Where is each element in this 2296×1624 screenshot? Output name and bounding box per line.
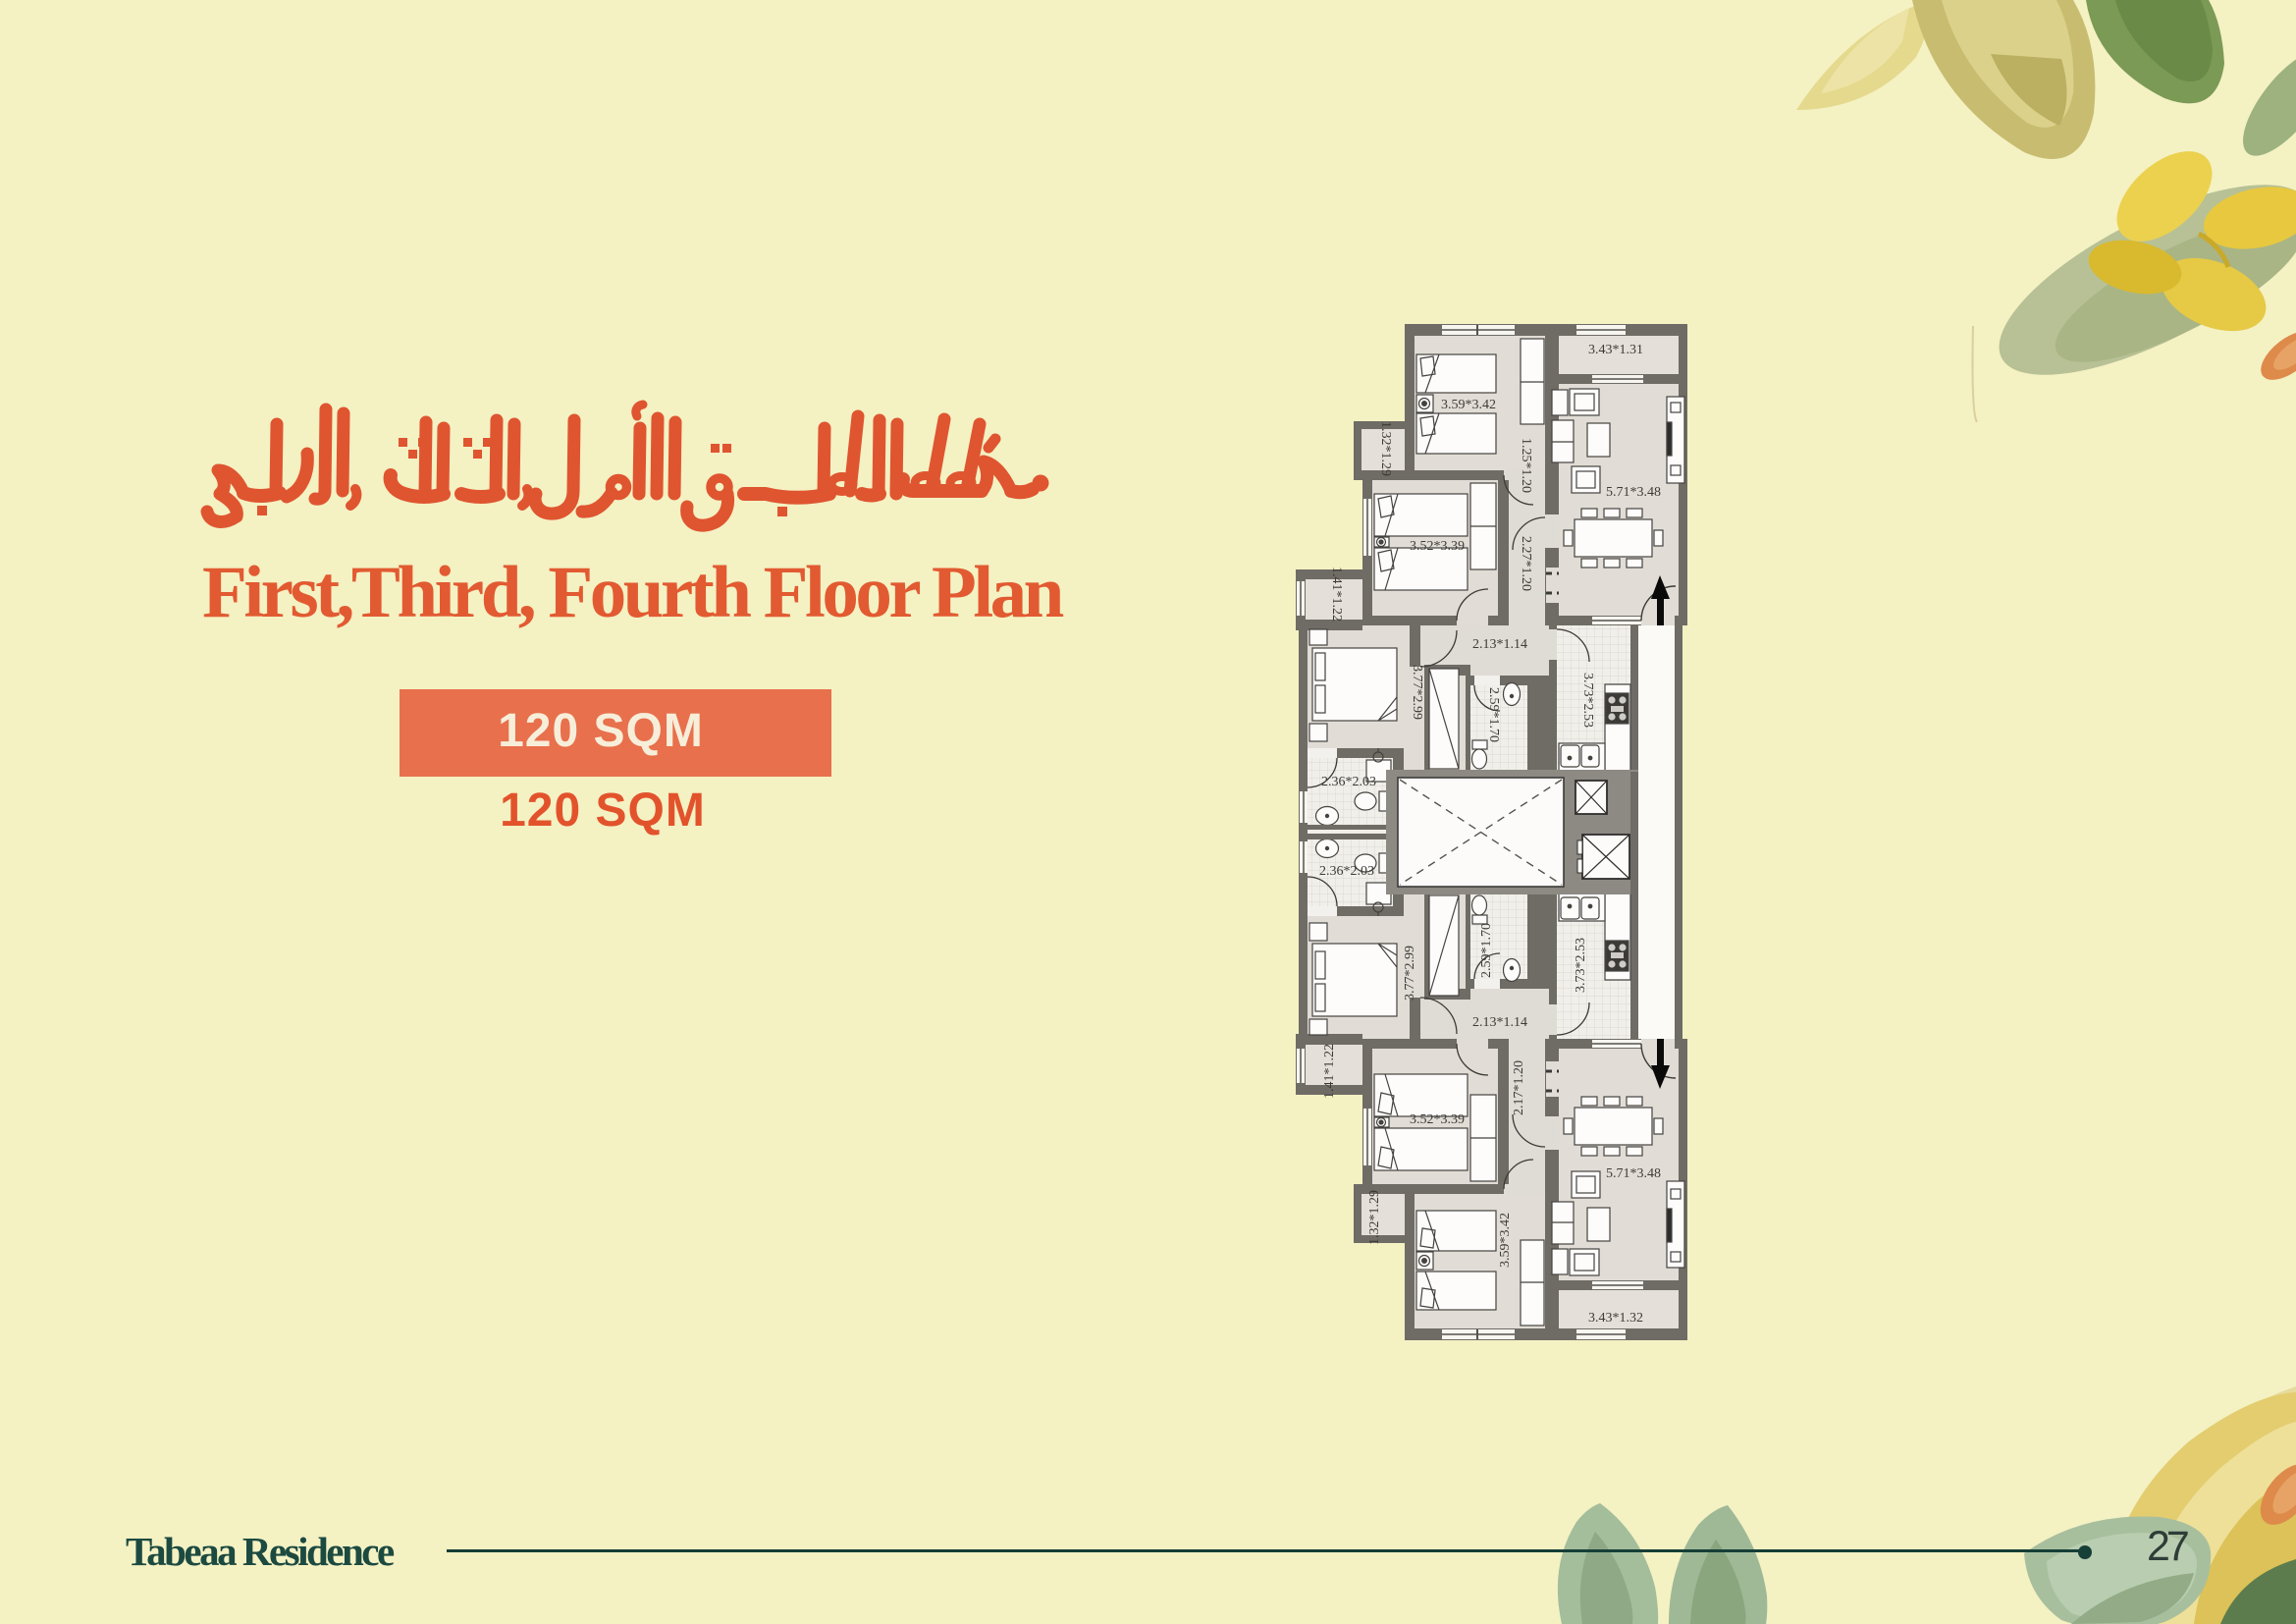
svg-text:2.17*1.20: 2.17*1.20: [1512, 1060, 1526, 1115]
svg-text:3.77*2.99: 3.77*2.99: [1403, 946, 1417, 1001]
svg-text:2.27*1.20: 2.27*1.20: [1519, 536, 1533, 591]
svg-text:2.59*1.70: 2.59*1.70: [1479, 923, 1494, 978]
svg-text:3.77*2.99: 3.77*2.99: [1410, 665, 1424, 720]
svg-text:3.73*2.53: 3.73*2.53: [1580, 673, 1595, 728]
svg-text:3.52*3.39: 3.52*3.39: [1410, 539, 1465, 554]
svg-text:1.41*1.22: 1.41*1.22: [1329, 567, 1344, 622]
svg-text:2.36*2.03: 2.36*2.03: [1319, 864, 1374, 879]
svg-text:1.25*1.20: 1.25*1.20: [1519, 438, 1533, 493]
svg-text:3.59*3.42: 3.59*3.42: [1441, 398, 1496, 412]
svg-text:3.73*2.53: 3.73*2.53: [1574, 938, 1588, 993]
svg-text:5.71*3.48: 5.71*3.48: [1606, 485, 1661, 500]
svg-text:3.52*3.39: 3.52*3.39: [1410, 1112, 1465, 1127]
svg-text:3.43*1.31: 3.43*1.31: [1588, 343, 1643, 357]
svg-text:1.41*1.22: 1.41*1.22: [1322, 1044, 1337, 1099]
svg-text:3.43*1.32: 3.43*1.32: [1588, 1311, 1643, 1326]
svg-text:2.13*1.14: 2.13*1.14: [1472, 1015, 1527, 1030]
svg-text:3.59*3.42: 3.59*3.42: [1498, 1213, 1513, 1268]
svg-text:1.32*1.29: 1.32*1.29: [1378, 421, 1393, 476]
svg-text:2.36*2.03: 2.36*2.03: [1321, 775, 1376, 789]
svg-text:5.71*3.48: 5.71*3.48: [1606, 1166, 1661, 1181]
svg-text:2.13*1.14: 2.13*1.14: [1472, 637, 1527, 652]
svg-text:2.59*1.70: 2.59*1.70: [1486, 687, 1501, 742]
svg-text:1.32*1.29: 1.32*1.29: [1367, 1190, 1382, 1245]
